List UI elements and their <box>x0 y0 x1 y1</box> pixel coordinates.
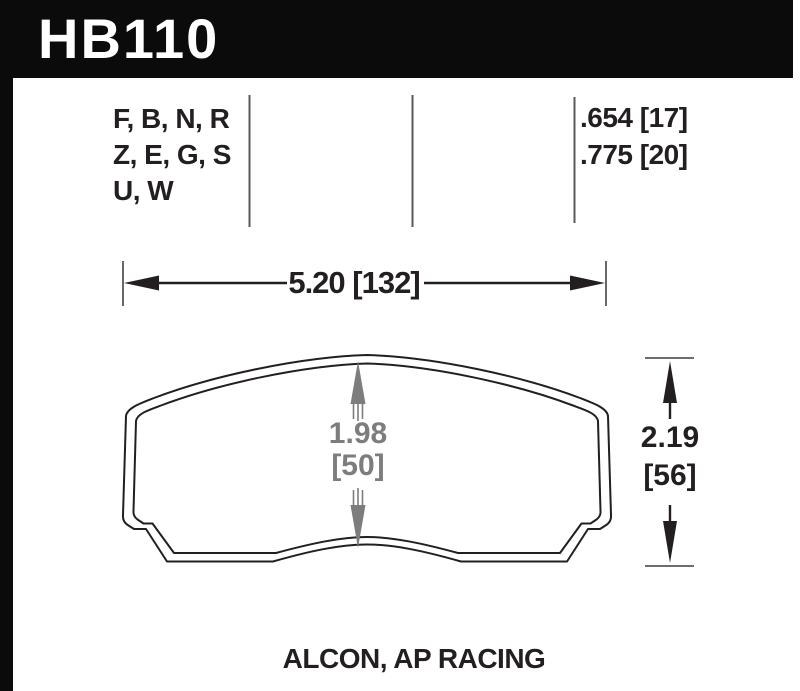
thickness-line: .775 [20] <box>580 136 688 173</box>
application-list: ALCON, AP RACING <box>207 642 621 676</box>
thickness-line: .654 [17] <box>580 99 688 136</box>
compound-line: F, B, N, R <box>113 101 231 137</box>
part-number: HB110 <box>38 8 219 70</box>
brake-pad-spec-sheet: HB110 F, B, N, R Z, E, G, S U, W .654 [1… <box>0 0 800 691</box>
spec-table-dividers <box>250 95 575 227</box>
compound-line: Z, E, G, S <box>113 137 231 173</box>
overall-width-dimension-label: 5.20 [132] <box>254 266 454 300</box>
page-left-border <box>0 0 13 691</box>
compound-line: U, W <box>113 173 231 209</box>
center-height-dimension-inches: 1.98 <box>303 419 413 449</box>
overall-height-dimension-mm: [56] <box>618 461 722 491</box>
compound-list: F, B, N, R Z, E, G, S U, W <box>113 101 231 209</box>
center-height-dimension-mm: [50] <box>303 451 413 481</box>
overall-height-dimension-inches: 2.19 <box>618 423 722 453</box>
pad-thickness-list: .654 [17] .775 [20] <box>580 99 688 173</box>
